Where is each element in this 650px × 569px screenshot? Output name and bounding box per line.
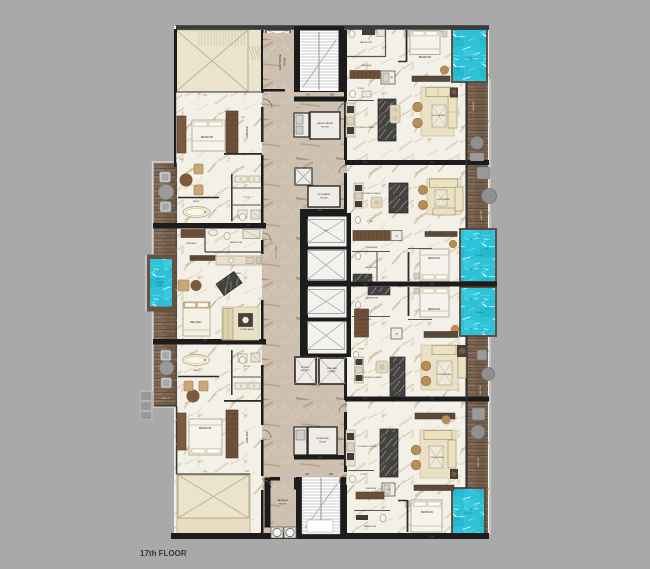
svg-text:PLUNGE POOL: PLUNGE POOL: [464, 57, 479, 59]
svg-text:KITCHEN & DINING: KITCHEN & DINING: [358, 446, 377, 448]
svg-text:3150: 3150: [179, 159, 183, 161]
svg-text:EXTRACT: EXTRACT: [301, 366, 311, 369]
svg-text:ROOM: ROOM: [322, 127, 329, 129]
svg-text:3300: 3300: [430, 284, 434, 286]
svg-text:DRESSER: DRESSER: [247, 126, 249, 137]
svg-text:DRESSER: DRESSER: [366, 488, 377, 490]
svg-text:3400: 3400: [245, 471, 249, 473]
svg-text:POOL: POOL: [157, 285, 162, 287]
svg-text:TOILET: TOILET: [357, 88, 365, 90]
svg-text:KITCHEN & DINING: KITCHEN & DINING: [362, 193, 381, 195]
svg-text:3300: 3300: [430, 29, 434, 31]
svg-text:BALCONY: BALCONY: [480, 210, 483, 220]
svg-text:4500: 4500: [430, 398, 434, 400]
svg-text:TOILET: TOILET: [243, 366, 251, 368]
svg-text:BATH: BATH: [193, 369, 199, 372]
svg-text:LIFT: LIFT: [324, 230, 329, 232]
svg-text:WASTE WATER: WASTE WATER: [317, 122, 333, 125]
svg-text:BEDROOM: BEDROOM: [428, 258, 440, 260]
svg-text:DRESSER: DRESSER: [186, 243, 197, 245]
svg-text:ROOM: ROOM: [283, 58, 287, 66]
svg-text:KITCHEN & DINING: KITCHEN & DINING: [356, 127, 375, 129]
svg-text:ROOM: ROOM: [319, 442, 326, 444]
svg-text:ROOM: ROOM: [321, 198, 328, 200]
svg-text:900: 900: [296, 107, 299, 109]
svg-text:BEDROOM: BEDROOM: [421, 512, 433, 514]
svg-text:BATHROOM: BATHROOM: [364, 525, 376, 528]
svg-text:TOILET: TOILET: [360, 474, 368, 476]
svg-text:KITCHEN & DINING: KITCHEN & DINING: [363, 377, 382, 379]
svg-text:3400: 3400: [318, 457, 322, 459]
svg-text:PLUNGE: PLUNGE: [464, 513, 473, 515]
svg-text:UP: UP: [306, 92, 310, 96]
svg-text:TOILET: TOILET: [358, 349, 366, 351]
svg-text:LIVING AREA: LIVING AREA: [438, 373, 452, 376]
svg-text:GARBAGE: GARBAGE: [277, 499, 288, 502]
svg-text:BTS WATER: BTS WATER: [318, 193, 331, 196]
svg-text:EXTRACT: EXTRACT: [328, 370, 338, 373]
svg-text:BEDROOM: BEDROOM: [428, 309, 440, 311]
svg-text:LIFT LOBBY: LIFT LOBBY: [275, 245, 278, 259]
svg-text:1467: 1467: [477, 84, 481, 86]
svg-text:LIVING AREA: LIVING AREA: [240, 328, 254, 331]
svg-text:AIR DUCT: AIR DUCT: [301, 369, 311, 372]
svg-text:BED AREA: BED AREA: [190, 321, 202, 324]
svg-text:4500: 4500: [430, 536, 434, 538]
svg-text:BEDROOM: BEDROOM: [199, 427, 211, 430]
svg-text:3100: 3100: [203, 340, 207, 342]
svg-text:LIVING AREA: LIVING AREA: [431, 456, 445, 459]
svg-text:BALCONY: BALCONY: [479, 385, 482, 395]
svg-text:2400: 2400: [363, 284, 367, 286]
svg-text:BATHROOM: BATHROOM: [360, 41, 372, 44]
svg-text:3150: 3150: [203, 471, 207, 473]
svg-text:2400: 2400: [363, 162, 367, 164]
svg-text:2400: 2400: [246, 225, 250, 227]
svg-text:DRESSER: DRESSER: [247, 431, 249, 442]
svg-text:PLUNGE: PLUNGE: [156, 282, 165, 284]
svg-text:DN: DN: [329, 472, 333, 476]
svg-text:1467: 1467: [477, 491, 481, 493]
svg-text:BATHROOM: BATHROOM: [230, 241, 242, 244]
svg-text:3000: 3000: [318, 210, 322, 212]
svg-text:TELEPHONE: TELEPHONE: [316, 438, 329, 440]
svg-text:BATHROOM: BATHROOM: [365, 266, 377, 269]
svg-text:BALCONY: BALCONY: [162, 397, 171, 400]
svg-text:UP: UP: [305, 472, 309, 476]
svg-text:TOILET: TOILET: [367, 221, 375, 223]
svg-text:FRESH AIR: FRESH AIR: [327, 367, 338, 370]
svg-text:1250: 1250: [241, 117, 245, 119]
svg-text:3400: 3400: [203, 95, 207, 97]
svg-text:DRESSER: DRESSER: [367, 247, 378, 249]
svg-text:2175: 2175: [258, 299, 262, 301]
svg-text:1460: 1460: [477, 232, 481, 234]
svg-text:BEDROOM: BEDROOM: [419, 56, 431, 59]
svg-text:DRESSER: DRESSER: [361, 319, 372, 321]
svg-text:BEDROOM: BEDROOM: [201, 136, 213, 139]
svg-text:900: 900: [264, 94, 267, 96]
svg-text:LIVING AREA: LIVING AREA: [432, 114, 446, 117]
svg-text:KITCHEN: KITCHEN: [231, 273, 241, 275]
svg-text:2400: 2400: [375, 29, 379, 31]
svg-text:BATH: BATH: [193, 200, 199, 203]
svg-text:4500: 4500: [430, 162, 434, 164]
svg-text:BALCONY: BALCONY: [477, 457, 480, 467]
svg-text:DRESSER: DRESSER: [361, 65, 372, 67]
svg-text:DN: DN: [330, 92, 334, 96]
svg-text:ROOM: ROOM: [279, 504, 286, 506]
svg-text:17th FLOOR: 17th FLOOR: [140, 549, 187, 558]
svg-text:TOILET: TOILET: [243, 197, 251, 199]
svg-text:1460: 1460: [477, 339, 481, 341]
svg-text:BATHROOM: BATHROOM: [366, 297, 378, 300]
svg-text:LIVING AREA: LIVING AREA: [437, 198, 451, 201]
svg-text:PLUNGE: PLUNGE: [475, 255, 484, 257]
svg-text:ELECTRICAL: ELECTRICAL: [278, 53, 282, 70]
svg-text:2400: 2400: [214, 252, 218, 254]
svg-text:BALCONY: BALCONY: [472, 101, 475, 111]
svg-text:3000: 3000: [363, 398, 367, 400]
svg-text:PLUNGE: PLUNGE: [475, 312, 484, 314]
